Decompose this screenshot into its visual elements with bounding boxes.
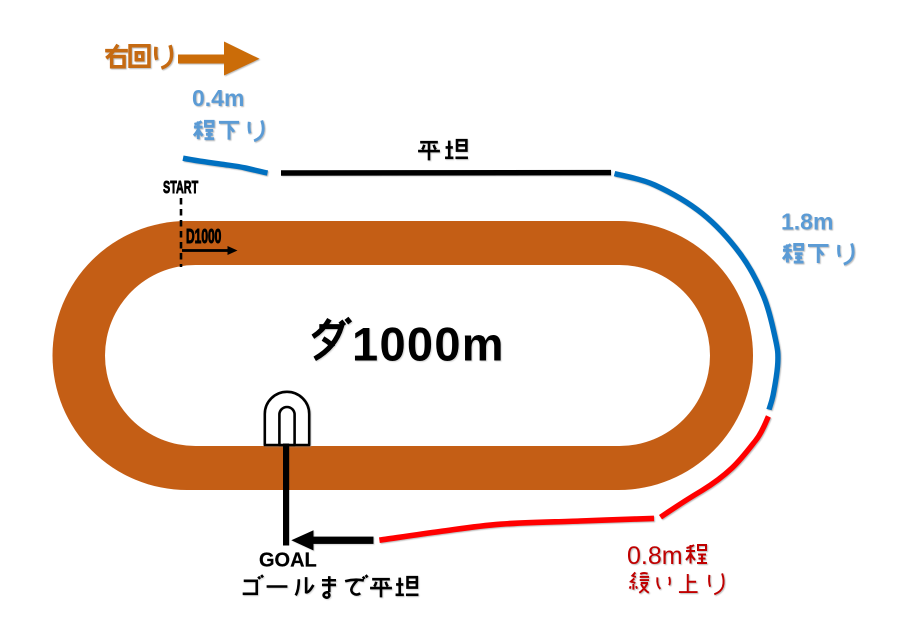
svg-text:0.8m: 0.8m: [627, 542, 683, 570]
svg-text:1000m: 1000m: [352, 318, 505, 371]
svg-text:0.4m: 0.4m: [192, 85, 244, 111]
svg-text:D1000: D1000: [186, 226, 221, 248]
svg-text:GOAL: GOAL: [259, 549, 317, 571]
svg-text:START: START: [163, 178, 198, 197]
svg-text:1.8m: 1.8m: [781, 209, 833, 235]
